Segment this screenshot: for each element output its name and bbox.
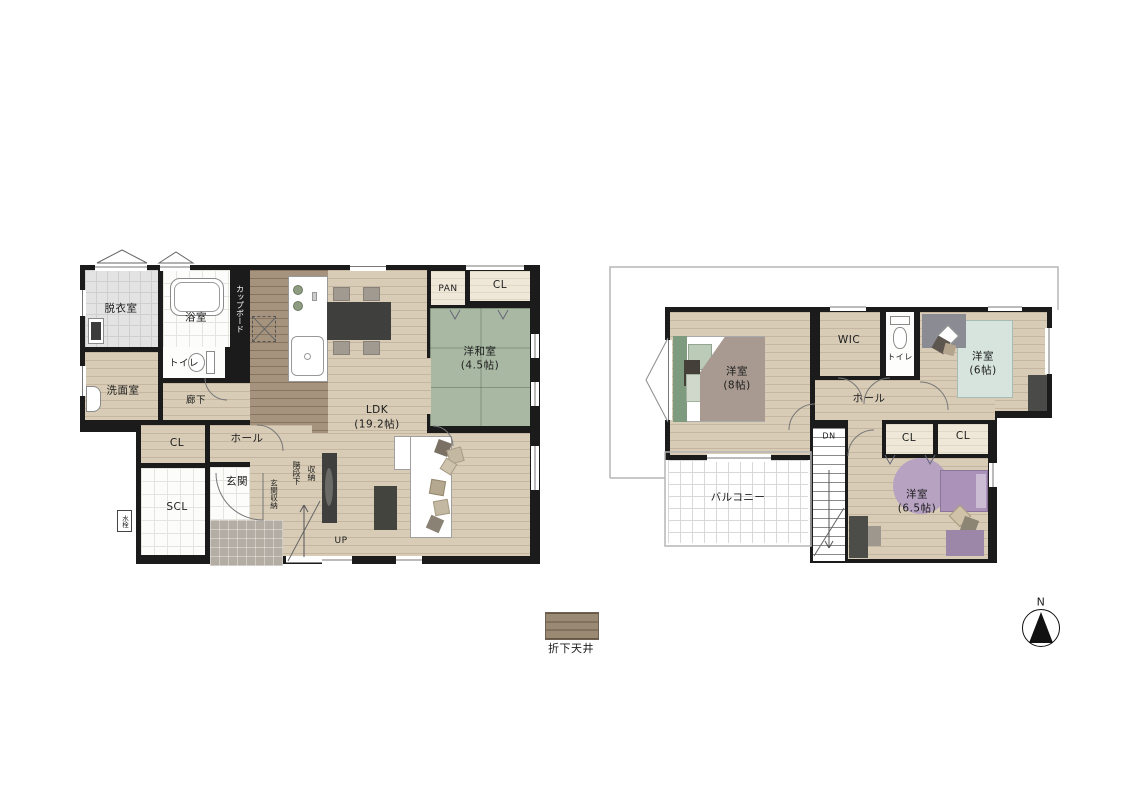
label-corridor: 廊下 xyxy=(186,392,206,406)
window-bath-top xyxy=(160,263,190,271)
stove-burner-1 xyxy=(293,285,303,295)
label-toilet1: トイレ xyxy=(169,355,199,369)
label-tatami: 洋和室 xyxy=(464,344,497,359)
label-dn: DN xyxy=(822,432,835,441)
shelf65-dark xyxy=(849,516,868,558)
window-wic-top xyxy=(830,303,866,311)
room-hall2-connector xyxy=(848,420,882,458)
dining-table xyxy=(327,302,391,340)
window-dressing-top xyxy=(95,263,147,271)
stove-knob xyxy=(312,292,317,301)
window-tatami-right-2 xyxy=(531,382,539,406)
label-up: UP xyxy=(334,536,347,546)
bed65-pillow xyxy=(976,474,986,508)
floor-plan-canvas: 脱衣室 浴室 カップボード トイレ 洗面室 廊下 PAN CL 洋和室 (4.5… xyxy=(0,0,1132,800)
living-table xyxy=(374,486,397,530)
label-pantry: PAN xyxy=(438,284,457,294)
label-cupboard: カップボード xyxy=(232,276,248,342)
label-bedroom65: 洋室 xyxy=(906,487,928,502)
label-wic: WIC xyxy=(838,334,860,346)
window-bedroom8-left xyxy=(665,340,672,420)
desk65 xyxy=(946,530,984,556)
dresser6 xyxy=(1028,375,1047,411)
toilet1-tank xyxy=(206,351,215,374)
tv xyxy=(325,468,333,506)
tatami-door-opening xyxy=(427,358,431,414)
compass-needle-icon xyxy=(1029,612,1053,643)
window-bedroom65-right xyxy=(989,463,997,487)
label-tatami-size: (4.5帖) xyxy=(461,358,499,373)
bathtub-inner xyxy=(174,282,220,312)
window-dining-top xyxy=(350,262,386,271)
label-balcony: バルコニー xyxy=(711,490,766,505)
window-dressing-left xyxy=(79,290,86,316)
window-washroom-left xyxy=(79,366,86,396)
label-bedroom6: 洋室 xyxy=(972,349,994,364)
label-bathroom: 浴室 xyxy=(185,310,207,325)
label-bedroom6-size: (6帖) xyxy=(969,363,996,378)
label-toilet2: トイレ xyxy=(887,352,913,363)
balcony-sliding-door xyxy=(707,454,771,462)
label-ldk-size: (19.2帖) xyxy=(354,417,400,432)
label-shoe-closet: SCL xyxy=(166,501,187,513)
legend-swatch-lowered-ceiling xyxy=(545,612,599,640)
window-bedroom6-right xyxy=(1045,328,1053,374)
label-bedroom8: 洋室 xyxy=(726,364,748,379)
compass-north-label: N xyxy=(1037,596,1046,609)
washroom-sink xyxy=(86,386,101,412)
dining-chair-2 xyxy=(363,287,380,301)
entrance-porch xyxy=(210,520,283,566)
label-closet-top: CL xyxy=(493,279,507,291)
toilet2-bowl xyxy=(893,327,907,349)
refrigerator-space xyxy=(252,316,276,342)
sofa-cushion-5 xyxy=(433,499,450,516)
window-closet-top xyxy=(466,262,524,270)
label-faucet: 水栓 xyxy=(117,510,132,532)
label-entrance-storage: 玄関収納 xyxy=(267,468,281,520)
kitchen-sink-drain xyxy=(304,353,311,360)
washing-machine-drum xyxy=(91,322,101,340)
sofa-cushion-4 xyxy=(429,479,446,496)
label-hall2: ホール xyxy=(853,391,886,406)
dining-chair-4 xyxy=(363,341,380,355)
label-ldk: LDK xyxy=(366,404,388,416)
window-tatami-right-1 xyxy=(531,334,539,358)
stairs-floor2 xyxy=(813,428,845,561)
label-hall1: ホール xyxy=(231,431,264,446)
label-closet-mid: CL xyxy=(170,437,184,449)
legend-label-lowered-ceiling: 折下天井 xyxy=(548,640,594,656)
label-washroom: 洗面室 xyxy=(107,383,140,398)
label-closet2a: CL xyxy=(902,432,916,444)
label-bedroom65-size: (6.5帖) xyxy=(898,501,936,516)
window-ldk-right xyxy=(531,446,539,490)
shelf65-gray xyxy=(868,526,881,546)
stove-burner-2 xyxy=(293,301,303,311)
toilet2-tank xyxy=(890,316,910,325)
dining-chair-3 xyxy=(333,341,350,355)
window-ldk-bottom-2 xyxy=(396,556,422,564)
label-bedroom8-size: (8帖) xyxy=(723,378,750,393)
room-corridor xyxy=(163,383,250,420)
dining-chair-1 xyxy=(333,287,350,301)
label-closet2b: CL xyxy=(956,430,970,442)
label-entrance: 玄関 xyxy=(226,474,248,489)
window-ldk-bottom-1 xyxy=(322,556,352,564)
label-dressing: 脱衣室 xyxy=(105,301,138,316)
label-under-stair-storage: 階段下収納 xyxy=(289,458,321,488)
window-bedroom6-top xyxy=(988,303,1022,311)
